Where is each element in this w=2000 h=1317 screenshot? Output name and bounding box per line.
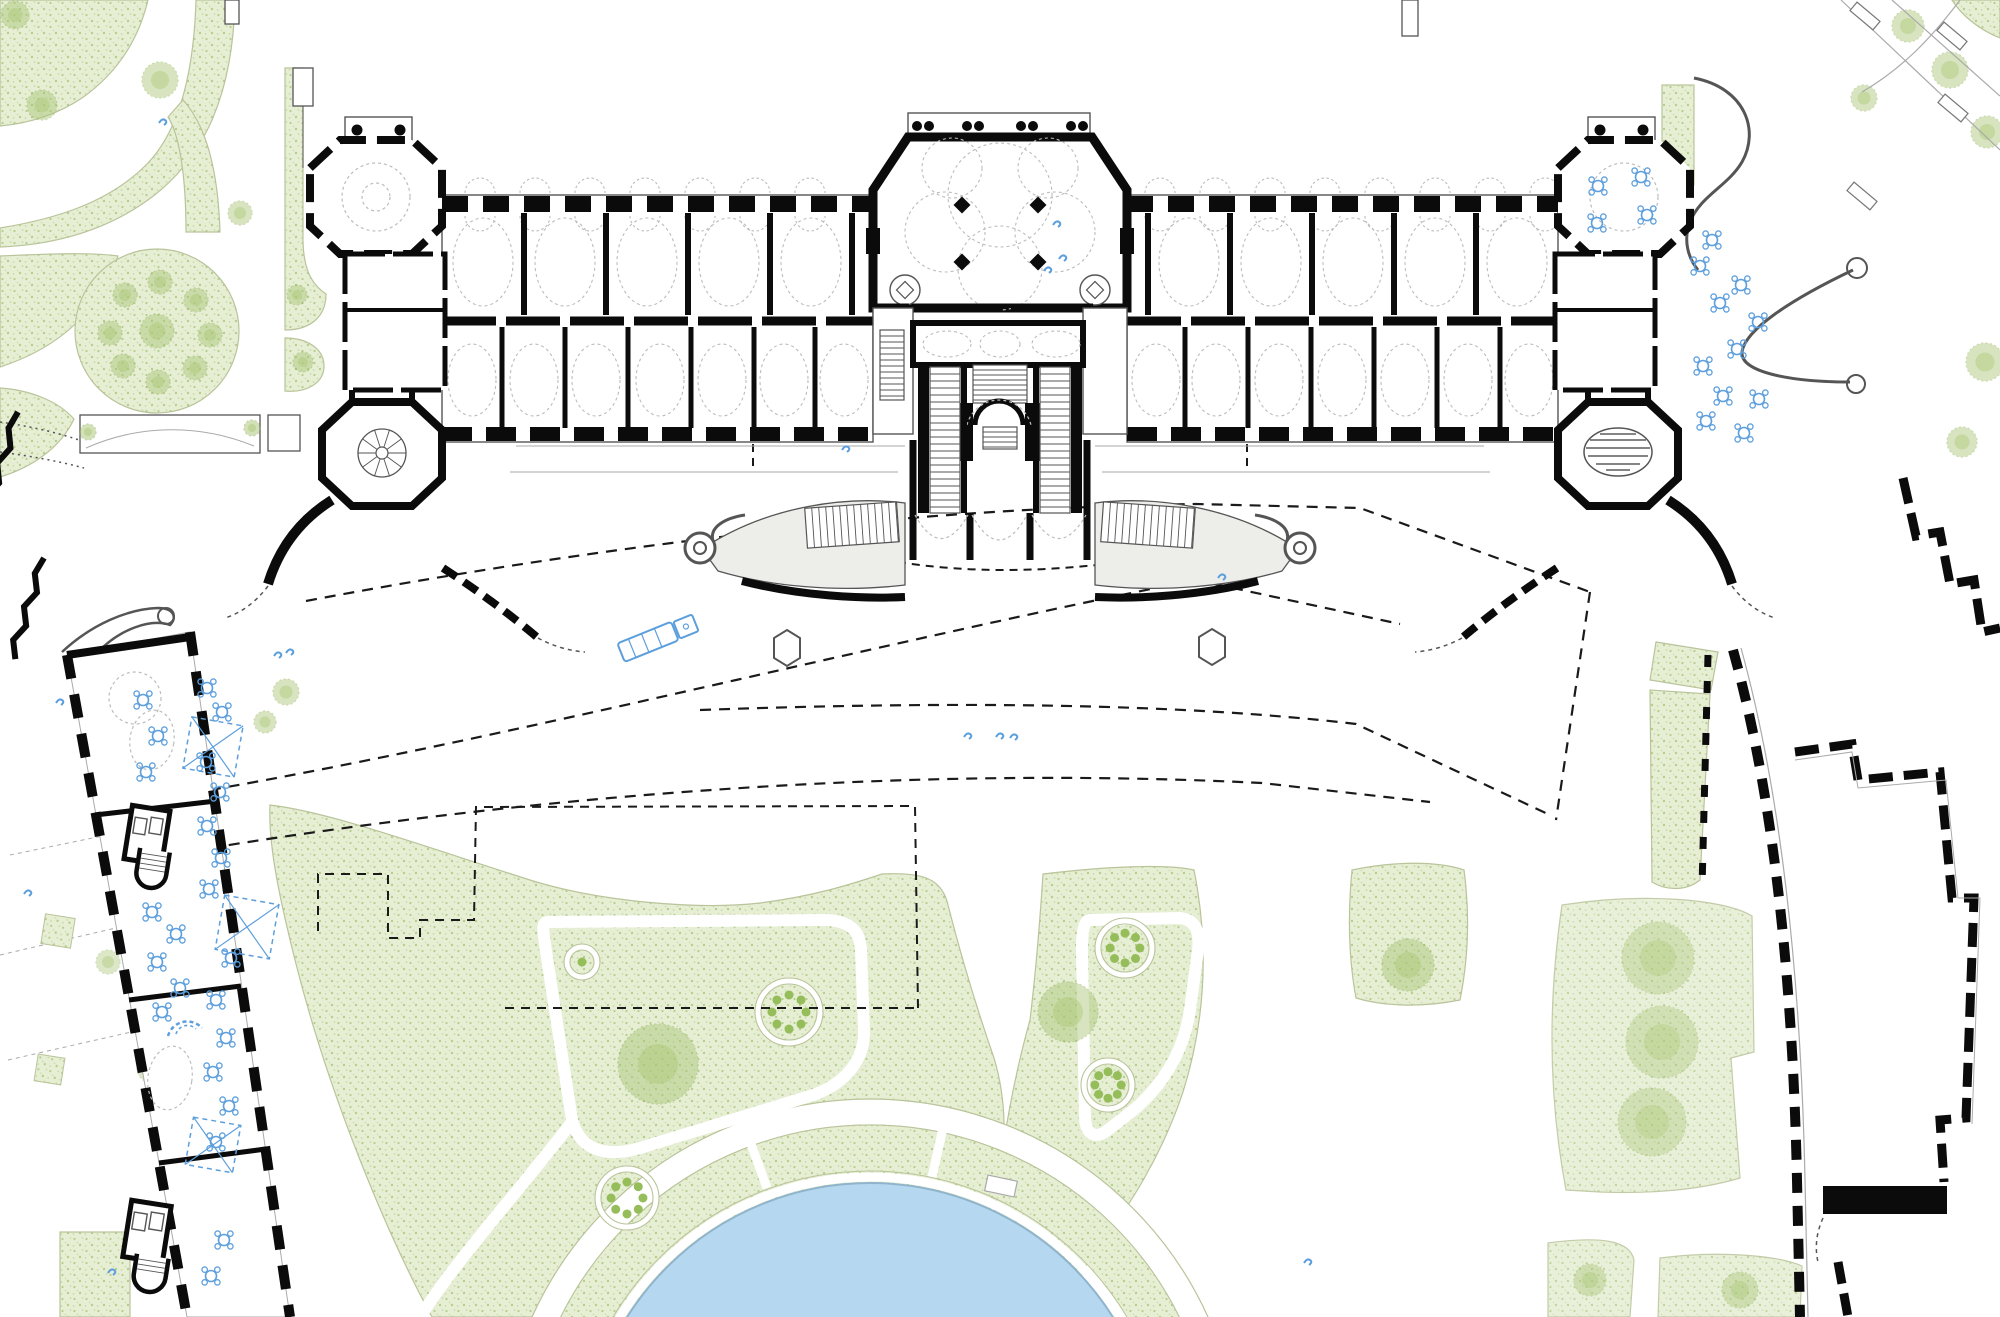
cafe-chair <box>1748 424 1753 429</box>
tree <box>204 329 216 341</box>
blue-accents <box>286 649 293 655</box>
window-bays <box>520 178 550 193</box>
cafe-chair <box>1735 437 1740 442</box>
tree <box>102 956 114 968</box>
tree-dot <box>1094 1090 1103 1099</box>
tree <box>1976 353 1995 372</box>
blue-accents <box>1010 734 1017 740</box>
cafe-chair <box>224 783 229 788</box>
u-stair <box>131 1254 168 1295</box>
cafe-chair <box>1716 231 1721 236</box>
tree-dot <box>1113 1090 1122 1099</box>
cafe-chair <box>1714 387 1719 392</box>
wall-strip-b <box>1650 690 1710 889</box>
cafe-chair <box>1749 326 1754 331</box>
oval-stair-tower <box>1558 402 1678 506</box>
plan-scene <box>0 0 2000 1317</box>
planter-bench2 <box>268 415 300 451</box>
grand-stair-lower <box>983 427 1017 449</box>
tree <box>189 362 201 374</box>
cafe-tables-right-terrace <box>1739 428 1750 439</box>
cafe-chair <box>1762 326 1767 331</box>
cafe-chair <box>1703 244 1708 249</box>
cafe-chair <box>213 703 218 708</box>
c-wall-right <box>1742 270 1853 382</box>
cafe-chair <box>1750 403 1755 408</box>
cafe-chair <box>226 716 231 721</box>
checker-wall-right <box>1462 568 1557 638</box>
porch-columns <box>1016 121 1026 131</box>
tree <box>1941 61 1959 79</box>
cafe-chair <box>1727 400 1732 405</box>
volute <box>685 533 715 563</box>
tree-dot <box>611 1205 620 1214</box>
checker-wall-left <box>443 568 538 638</box>
tree-dot <box>623 1178 632 1187</box>
tree-dot <box>785 1025 794 1034</box>
cafe-chair <box>226 703 231 708</box>
cafe-chair <box>1704 270 1709 275</box>
tree-dot <box>1104 1067 1113 1076</box>
hall-pier <box>866 228 880 254</box>
window-bays <box>1475 178 1505 193</box>
cafe-chair <box>211 692 216 697</box>
hedge-bottomleft <box>60 1232 130 1317</box>
cafe-chair <box>1750 390 1755 395</box>
tree-dot <box>1090 1081 1099 1090</box>
hall-niche <box>890 275 920 305</box>
hall-niche <box>1080 275 1110 305</box>
tree <box>104 327 116 339</box>
cafe-chair <box>1710 425 1715 430</box>
window-bays <box>685 178 715 193</box>
tree-dot <box>611 1182 620 1191</box>
porch-columns <box>395 125 406 136</box>
window-bays <box>1365 178 1395 193</box>
estate-wall-upper <box>1903 478 2000 632</box>
tree <box>1955 435 1970 450</box>
tree-dot <box>578 958 587 967</box>
bench <box>1938 94 1968 122</box>
tree-dot <box>1131 933 1140 942</box>
pedestal <box>1199 629 1225 665</box>
truck-detail <box>641 634 648 653</box>
tree <box>1635 1105 1669 1139</box>
cafe-tables-right-terrace <box>1701 416 1712 427</box>
tree <box>8 8 22 22</box>
cafe-chair <box>211 679 216 684</box>
cafe-tables-right-terrace <box>1736 280 1747 291</box>
cafe-chair <box>1716 244 1721 249</box>
tree <box>190 294 202 306</box>
gate-swing <box>538 638 585 652</box>
porch-columns <box>1638 125 1649 136</box>
cafe-chair <box>1763 390 1768 395</box>
blue-accents <box>24 890 31 896</box>
lawn-corner-topright <box>1952 0 2000 38</box>
gallery-floor <box>67 632 290 1317</box>
blue-accents <box>996 733 1003 739</box>
tree-dot <box>1121 929 1130 938</box>
terrace-edge-dash <box>898 562 1122 570</box>
cafe-chair <box>1732 276 1737 281</box>
porch-columns <box>912 121 922 131</box>
cafe-tables-right-terrace <box>1698 361 1709 372</box>
gate-post <box>1402 0 1418 36</box>
side-stair <box>880 330 904 400</box>
bed-line <box>8 1030 140 1060</box>
tree-dot <box>1106 944 1115 953</box>
window-bays <box>575 178 605 193</box>
gate-post <box>293 68 313 106</box>
blue-accents <box>159 119 166 125</box>
stair-core <box>123 1200 171 1263</box>
cafe-chair <box>225 862 230 867</box>
service-truck <box>617 622 678 662</box>
cafe-chair <box>1749 313 1754 318</box>
cafe-chair <box>1714 400 1719 405</box>
cafe-chair <box>1728 340 1733 345</box>
porch-columns <box>962 121 972 131</box>
truck-detail <box>683 623 690 630</box>
tree <box>292 290 302 300</box>
flank-wall-left <box>268 500 332 584</box>
porch-columns <box>352 125 363 136</box>
bench <box>1850 2 1880 30</box>
tree <box>1644 1024 1680 1060</box>
porch-columns <box>924 121 934 131</box>
planter-bench <box>80 415 260 453</box>
tree <box>280 686 293 699</box>
tree <box>1395 952 1421 978</box>
long-flight-left <box>930 367 960 513</box>
tree <box>1731 1281 1749 1299</box>
tree-dot <box>607 1194 616 1203</box>
tree-dot <box>1110 954 1119 963</box>
long-flight-right <box>1040 367 1070 513</box>
site-plan-canvas <box>0 0 2000 1317</box>
flank-wall-right <box>1668 500 1732 584</box>
site-plan-drawing <box>0 0 2000 1317</box>
tree <box>638 1044 678 1084</box>
porch-columns <box>1028 121 1038 131</box>
tree-dot <box>634 1182 643 1191</box>
window-bays <box>1200 178 1230 193</box>
cafe-tables-right-terrace <box>1732 344 1743 355</box>
porch-columns <box>1066 121 1076 131</box>
tree-dot <box>1094 1071 1103 1080</box>
porch-columns <box>974 121 984 131</box>
cafe-chair <box>1694 357 1699 362</box>
estate-wall-low <box>1838 1262 1848 1317</box>
tree <box>35 98 50 113</box>
cafe-chair <box>1697 412 1702 417</box>
gate-swing <box>1415 638 1462 652</box>
cafe-chair <box>1762 313 1767 318</box>
cafe-chair <box>1711 307 1716 312</box>
cafe-chair <box>1710 412 1715 417</box>
tree <box>1858 92 1871 105</box>
tree <box>298 357 308 367</box>
gate-swing <box>225 586 268 618</box>
window-bays <box>465 178 495 193</box>
tree <box>260 717 271 728</box>
truck-detail <box>628 639 635 658</box>
right-tower-rooms <box>1555 254 1655 390</box>
cafe-chair <box>1727 387 1732 392</box>
tree-dot <box>1117 1081 1126 1090</box>
blue-accents <box>274 652 281 658</box>
cafe-chair <box>1694 370 1699 375</box>
tree-dot <box>1121 958 1130 967</box>
tree-dot <box>1135 944 1144 953</box>
tree <box>154 276 166 288</box>
gate-swing <box>1732 586 1775 618</box>
left-tower <box>310 140 442 254</box>
volute <box>1847 375 1865 393</box>
tree-dot <box>623 1209 632 1218</box>
cafe-chair <box>1707 357 1712 362</box>
planter-green <box>84 428 92 436</box>
left-tower-rooms <box>345 254 445 390</box>
forecourt-dash <box>210 580 1400 790</box>
u-stair <box>134 848 170 890</box>
cafe-chair <box>1724 307 1729 312</box>
tree-dot <box>797 1020 806 1029</box>
cafe-chair <box>1745 289 1750 294</box>
cafe-chair <box>1735 424 1740 429</box>
forecourt-dash <box>700 705 1552 816</box>
tree <box>1582 1272 1598 1288</box>
lamp-post <box>8 557 48 659</box>
window-bays <box>1420 178 1450 193</box>
window-bays <box>795 178 825 193</box>
cafe-tables-right-terrace <box>1715 298 1726 309</box>
tree-dot <box>1113 1071 1122 1080</box>
cafe-chair <box>1728 353 1733 358</box>
right-tower <box>1558 140 1690 254</box>
tree-dot <box>638 1194 647 1203</box>
cafe-tables-right-terrace <box>1707 235 1718 246</box>
bed-square <box>34 1054 65 1085</box>
bed-square <box>41 914 75 948</box>
cafe-chair <box>1732 289 1737 294</box>
forecourt-dash <box>1556 592 1590 820</box>
volute <box>1847 258 1867 278</box>
blue-accents <box>56 699 63 705</box>
volute <box>158 608 174 624</box>
cafe-chair <box>1711 294 1716 299</box>
tree <box>1900 18 1916 34</box>
tree <box>117 360 129 372</box>
cafe-chair <box>1707 370 1712 375</box>
tree <box>119 289 131 301</box>
cafe-chair <box>1697 425 1702 430</box>
cafe-chair <box>1724 294 1729 299</box>
window-bays <box>1310 178 1340 193</box>
stair-side-room <box>1083 308 1127 434</box>
cafe-chair <box>1745 276 1750 281</box>
tree-dot <box>772 1020 781 1029</box>
tree-dot <box>1104 1094 1113 1103</box>
arcade-vault <box>915 515 968 539</box>
volute <box>1285 533 1315 563</box>
porch-columns <box>1595 125 1606 136</box>
bench <box>1937 22 1967 50</box>
tree-dot <box>1110 933 1119 942</box>
cafe-chair <box>1748 437 1753 442</box>
window-bays <box>740 178 770 193</box>
window-bays <box>630 178 660 193</box>
blue-accents <box>842 446 849 452</box>
cafe-chair <box>224 796 229 801</box>
tree <box>151 71 169 89</box>
hall-pier <box>1120 228 1134 254</box>
gate-post <box>225 0 239 24</box>
forecourt-dash <box>306 504 1590 601</box>
cafe-chair <box>1691 270 1696 275</box>
cafe-chair <box>1704 257 1709 262</box>
grand-stair-upper <box>973 365 1027 403</box>
porch-columns <box>1078 121 1088 131</box>
anteroom <box>913 323 1083 365</box>
estate-wall-edge <box>1795 752 1980 1124</box>
blue-accents <box>964 733 971 739</box>
blue-accents <box>1304 1259 1311 1265</box>
tree-dot <box>785 990 794 999</box>
cafe-tables-gallery-out <box>217 707 228 718</box>
tree <box>234 207 246 219</box>
truck-detail <box>654 628 661 647</box>
gate-swing <box>1816 1218 1823 1262</box>
estate-wall <box>1795 744 1974 1182</box>
tree-dot <box>772 995 781 1004</box>
estate-wall-bar <box>1823 1186 1947 1214</box>
tree <box>1053 997 1083 1027</box>
tree <box>149 323 166 340</box>
arcade-vault <box>972 515 1027 540</box>
cafe-tables-right-terrace <box>1718 391 1729 402</box>
tree <box>1640 940 1676 976</box>
pedestal <box>774 630 800 666</box>
tree-dot <box>634 1205 643 1214</box>
bench <box>1847 182 1877 210</box>
tree <box>152 376 164 388</box>
tree-dot <box>1131 954 1140 963</box>
cafe-chair <box>1763 403 1768 408</box>
window-bays <box>1255 178 1285 193</box>
arcade-vault <box>1032 515 1086 539</box>
planter-green <box>248 424 256 432</box>
cafe-tables-right-terrace <box>1754 394 1765 405</box>
cafe-chair <box>1703 231 1708 236</box>
tree-dot <box>797 995 806 1004</box>
window-bays <box>1145 178 1175 193</box>
